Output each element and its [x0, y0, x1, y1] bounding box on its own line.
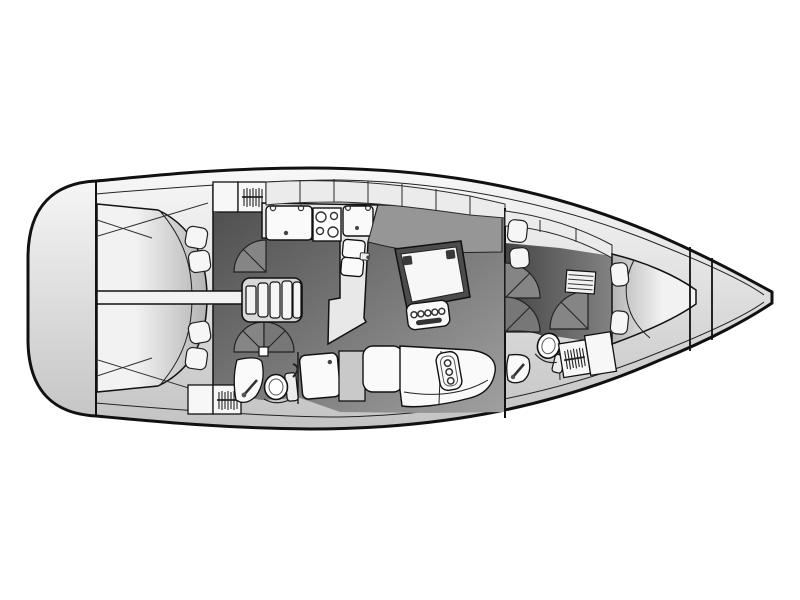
pillow — [610, 262, 629, 287]
door-pivot — [259, 347, 268, 356]
dining-table — [395, 241, 470, 309]
table-corner-fitting — [446, 249, 456, 259]
companionway-steps — [242, 278, 302, 322]
drain-dot-icon — [355, 226, 359, 230]
drawer-unit — [565, 270, 595, 294]
galley-sink-unit — [266, 205, 312, 240]
corner-seat — [363, 346, 403, 392]
forward-head-sink — [507, 355, 530, 383]
pillow — [509, 247, 530, 269]
table-corner-fitting — [403, 255, 413, 265]
galley-counter-2 — [343, 206, 373, 236]
shower-tray — [299, 352, 341, 399]
drain-dot-icon — [284, 231, 288, 235]
pillow — [187, 320, 211, 344]
shelf-locker-port — [213, 182, 238, 212]
pillow — [610, 310, 629, 335]
pillow — [184, 225, 208, 249]
corner-seat-back — [339, 351, 365, 401]
shelf-locker-starboard — [188, 385, 213, 414]
steps — [258, 281, 301, 319]
pillow — [188, 250, 212, 274]
bottle-rack — [406, 300, 451, 331]
yacht-floor-plan — [0, 0, 800, 600]
pillow — [507, 219, 528, 243]
pillow — [185, 347, 209, 371]
berth-divider-bar — [97, 291, 245, 304]
stove — [313, 208, 341, 241]
boat-floor-plan-canvas — [0, 0, 800, 600]
